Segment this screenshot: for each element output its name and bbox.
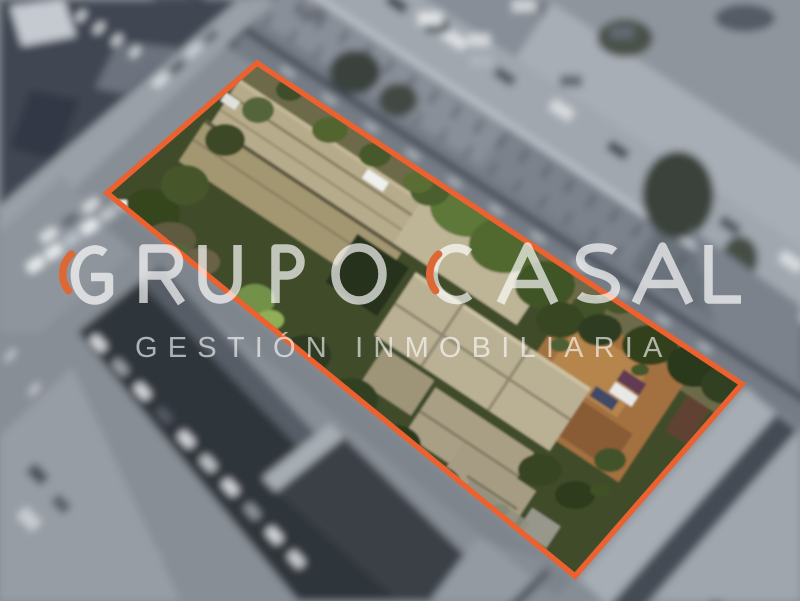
svg-text:GESTIÓN INMOBILIARIA: GESTIÓN INMOBILIARIA [135, 331, 673, 364]
